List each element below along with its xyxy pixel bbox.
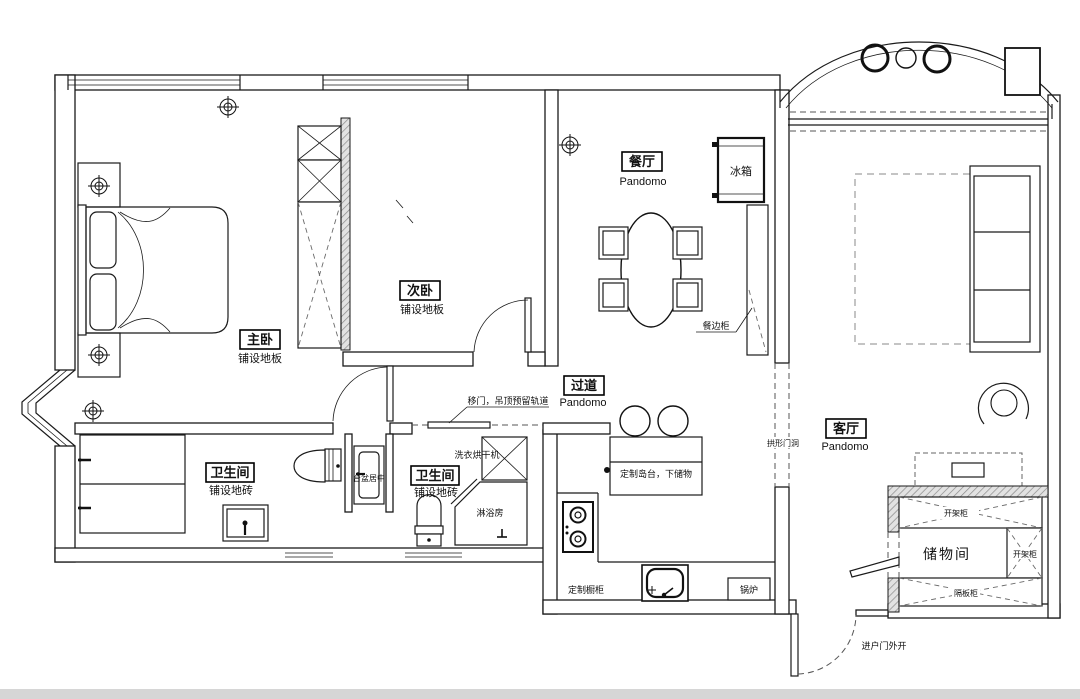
bathroom-mid-floor: 铺设地砖	[414, 485, 458, 499]
svg-text:餐边柜: 餐边柜	[702, 320, 729, 331]
entry-sill	[856, 610, 888, 616]
balcony-circle-left	[862, 45, 888, 71]
storage-door	[850, 557, 899, 577]
wall-left-lower	[55, 446, 75, 562]
bottom-strip	[0, 689, 1080, 699]
bathroom-mid-name: 卫生间	[415, 468, 454, 483]
storage-name: 储物间	[923, 546, 971, 562]
wall-niche-east	[386, 434, 393, 512]
second-bedroom	[396, 200, 531, 352]
kitchen	[557, 406, 775, 601]
pillow-top	[90, 212, 116, 268]
wall-hatched-storage-left-lower	[888, 578, 899, 612]
balcony-cabinet	[1005, 48, 1040, 95]
wall-bath-top-jamb	[390, 423, 412, 434]
svg-text:开架柜: 开架柜	[1013, 549, 1037, 559]
wall-hatched-wardrobe	[341, 118, 350, 350]
wall-bedroom2-south-a	[343, 352, 473, 366]
wall-right	[1048, 95, 1060, 618]
label-hallway: 过道 Pandomo	[559, 376, 606, 409]
wall-dining-living-lower	[775, 487, 789, 614]
dining-name: 餐厅	[628, 154, 655, 169]
wall-hatched-storage-top	[888, 486, 1048, 497]
svg-text:拱形门洞: 拱形门洞	[767, 438, 799, 448]
island-label: 定制岛台，下储物	[620, 468, 692, 479]
master-bedroom-name: 主卧	[247, 332, 273, 347]
second-bedroom-floor: 铺设地板	[400, 302, 444, 316]
hallway-floor: Pandomo	[559, 397, 606, 409]
living-name: 客厅	[833, 421, 859, 436]
wall-dining-living-upper	[775, 90, 789, 363]
floorplan-canvas: 主卧 铺设地板 次卧 铺设地板 餐厅 Pandomo 过道 Pandomo 客厅…	[0, 0, 1080, 699]
bed	[86, 207, 228, 333]
blanket-fold-bottom	[120, 318, 170, 332]
wall-bath-top	[75, 423, 333, 434]
dining-chair	[599, 227, 628, 259]
sideboard-label: 餐边柜	[696, 308, 752, 332]
pillow-bottom	[90, 274, 116, 330]
wall-kitchen-north	[543, 423, 610, 434]
wall-hatched-storage-left-upper	[888, 497, 899, 532]
shelf-cabinet-label: 隔板柜	[952, 587, 980, 598]
sink-centered-label: 台盆居中	[353, 473, 385, 483]
shower-label: 淋浴房	[476, 507, 503, 518]
wall-bedroom2-south-b	[528, 352, 545, 366]
open-shelf-top-label: 开架柜	[934, 507, 979, 519]
label-living: 客厅 Pandomo	[821, 419, 868, 453]
light-symbol	[82, 400, 104, 422]
bedroom2-door	[474, 298, 531, 352]
hallway	[412, 407, 543, 428]
walls	[22, 75, 1060, 618]
bed-headboard	[78, 205, 86, 335]
label-dining: 餐厅 Pandomo	[619, 152, 666, 188]
sliding-door-label: 移门，吊顶预留轨道	[467, 395, 549, 407]
dining-chair	[673, 279, 702, 311]
master-bedroom-floor: 铺设地板	[238, 351, 282, 365]
entry-door-swing	[798, 615, 856, 674]
entry-door-label: 进户门外开	[861, 640, 906, 651]
sink-left	[223, 505, 268, 541]
blanket-fold-top	[120, 208, 170, 222]
arch-opening-label: 拱形门洞	[763, 437, 803, 448]
wall-bedroom2-east	[545, 90, 558, 366]
fridge-label: 冰箱	[730, 164, 752, 178]
living-room	[855, 166, 1040, 486]
custom-cabinet-label: 定制橱柜	[568, 584, 604, 595]
svg-text:移门，吊顶预留轨道: 移门，吊顶预留轨道	[467, 395, 548, 406]
wall-kitchen-bottom	[543, 600, 796, 614]
cabinet-unit	[78, 435, 185, 533]
boiler-label: 锅炉	[740, 584, 758, 595]
bathroom-left-floor: 铺设地砖	[209, 483, 253, 497]
light-symbol	[217, 96, 239, 118]
window-living-balcony	[788, 112, 1048, 131]
bar-stool	[620, 406, 650, 436]
open-shelf-right-label: 开架柜	[1011, 548, 1039, 559]
dining-chair	[599, 279, 628, 311]
wall-niche-west	[345, 434, 352, 512]
toilet-left	[294, 449, 341, 482]
bay-window-inner	[36, 370, 75, 446]
washer-dryer-label: 洗衣烘干机	[454, 449, 499, 460]
label-bathroom-mid: 卫生间 铺设地砖	[411, 466, 459, 499]
balcony-circle-right	[924, 46, 950, 72]
wall-kitchen-west	[543, 430, 557, 614]
bathroom-left-name: 卫生间	[210, 465, 249, 480]
floorplan-svg: 主卧 铺设地板 次卧 铺设地板 餐厅 Pandomo 过道 Pandomo 客厅…	[0, 0, 1080, 699]
stove	[563, 502, 593, 552]
entry-door-leaf	[791, 614, 798, 676]
armchair	[978, 383, 1028, 424]
second-bedroom-name: 次卧	[407, 283, 433, 298]
entry-door	[791, 614, 856, 676]
hallway-name: 过道	[571, 378, 597, 393]
master-door	[333, 366, 393, 421]
light-symbol	[559, 134, 581, 156]
arched-doorway	[775, 363, 789, 487]
dining-table	[621, 213, 681, 327]
wall-left-upper	[55, 75, 75, 370]
kitchen-island	[604, 437, 702, 495]
rug	[855, 174, 973, 344]
wall-top	[55, 75, 780, 90]
bar-stool	[658, 406, 688, 436]
living-floor: Pandomo	[821, 441, 868, 453]
toilet-mid	[415, 495, 443, 546]
tv-console	[915, 453, 1022, 486]
svg-text:隔板柜: 隔板柜	[954, 588, 978, 598]
dining-floor: Pandomo	[619, 176, 666, 188]
blanket-curve	[118, 212, 144, 328]
kitchen-sink	[642, 565, 688, 601]
sliding-door-track	[412, 407, 543, 428]
wall-bottom-bath	[55, 548, 545, 562]
svg-text:开架柜: 开架柜	[944, 508, 968, 518]
balcony-arch	[780, 42, 1058, 119]
sideboard	[747, 205, 768, 355]
label-second-bedroom: 次卧 铺设地板	[400, 281, 444, 316]
label-master-bedroom: 主卧 铺设地板	[238, 330, 282, 365]
wardrobe	[298, 126, 341, 348]
dining-chair	[673, 227, 702, 259]
sofa	[970, 166, 1040, 352]
label-bathroom-left: 卫生间 铺设地砖	[206, 463, 254, 497]
